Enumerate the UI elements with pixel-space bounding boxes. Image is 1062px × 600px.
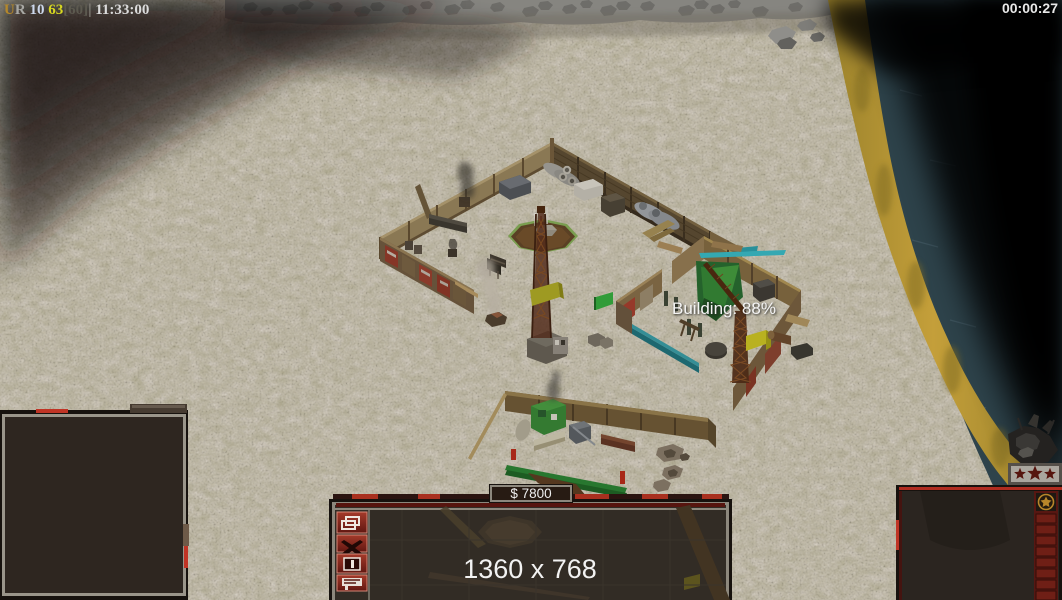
svg-text:00:00:27: 00:00:27 (1002, 0, 1058, 16)
svg-text:$ 7800: $ 7800 (510, 486, 551, 501)
svg-text:UR 10 63[60]| 11:33:00: UR 10 63[60]| 11:33:00 (4, 2, 149, 18)
svg-text:1360 x 768: 1360 x 768 (463, 554, 597, 584)
svg-text:Building: 88%: Building: 88% (672, 299, 776, 318)
